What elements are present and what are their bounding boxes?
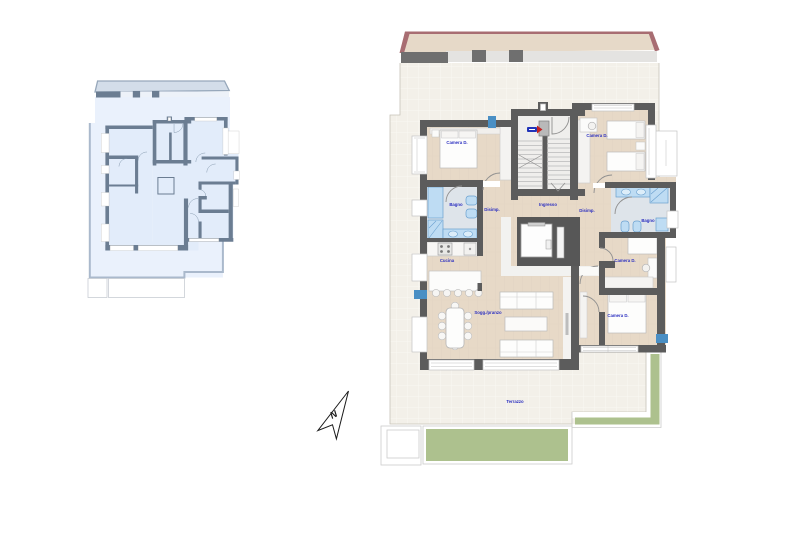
svg-text:Camera D.: Camera D.: [614, 258, 635, 263]
svg-text:Sogg./pranzo: Sogg./pranzo: [474, 310, 502, 315]
svg-text:Camera D.: Camera D.: [586, 133, 607, 138]
svg-text:Camera D.: Camera D.: [607, 313, 628, 318]
svg-text:Bagno: Bagno: [449, 202, 463, 207]
svg-text:Disimp.: Disimp.: [579, 208, 595, 213]
svg-text:Bagno: Bagno: [641, 218, 655, 223]
svg-text:Ingresso: Ingresso: [539, 202, 557, 207]
svg-text:Terrazzo: Terrazzo: [506, 399, 524, 404]
svg-text:Camera D.: Camera D.: [446, 140, 467, 145]
svg-text:Cucina: Cucina: [440, 258, 455, 263]
svg-text:Disimp.: Disimp.: [484, 207, 500, 212]
